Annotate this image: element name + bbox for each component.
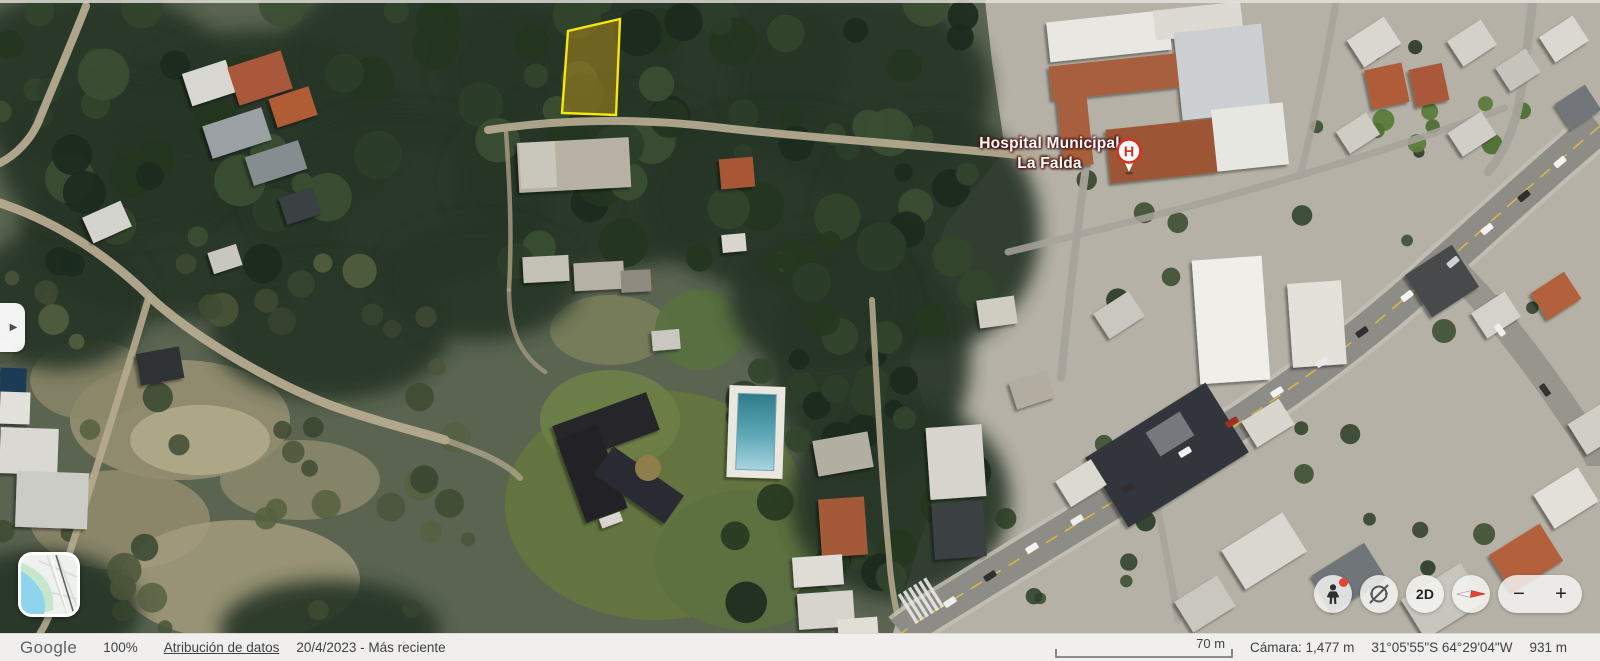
tree: [854, 366, 888, 400]
zoom-in-button[interactable]: +: [1540, 575, 1582, 613]
tree: [1432, 319, 1456, 343]
map-viewport[interactable]: Hospital Municipal La Falda H ▶: [0, 0, 1600, 633]
building: [792, 554, 844, 587]
tree: [1526, 301, 1539, 314]
tree: [402, 600, 420, 618]
tree: [254, 289, 278, 313]
tree: [1294, 421, 1308, 435]
tree: [176, 254, 196, 274]
tree: [420, 520, 442, 542]
orbit-button[interactable]: [1360, 575, 1398, 613]
tree: [415, 306, 436, 327]
tree: [915, 304, 947, 336]
tree: [814, 194, 860, 240]
tree: [725, 582, 767, 624]
ground-elevation: 931 m: [1529, 640, 1567, 655]
minimap-preview: [21, 555, 77, 614]
tree: [1420, 560, 1435, 575]
tree: [664, 3, 703, 42]
tree: [383, 320, 401, 338]
tree: [947, 24, 974, 51]
tree: [1120, 553, 1137, 570]
tree: [312, 490, 341, 519]
tree: [515, 24, 550, 59]
tree: [821, 375, 850, 404]
tree: [354, 131, 402, 179]
tree: [721, 521, 750, 550]
tree: [1162, 268, 1181, 287]
field-patch: [130, 405, 270, 475]
tree: [308, 600, 329, 621]
tree: [266, 499, 287, 520]
building: [519, 141, 557, 189]
status-right-group: 70 m Cámara: 1,477 m 31°05'55"S 64°29'04…: [1055, 637, 1600, 659]
orbit-icon: [1367, 582, 1391, 606]
tree: [412, 23, 458, 69]
hospital-pin-icon: H: [1113, 137, 1145, 177]
tree: [956, 163, 979, 186]
imagery-edge-strip: [0, 0, 1600, 3]
tree: [1473, 523, 1495, 545]
tree: [1340, 424, 1360, 444]
map-controls: 2D − +: [1314, 575, 1582, 613]
tree: [615, 9, 662, 56]
svg-text:H: H: [1124, 145, 1134, 161]
satellite-imagery: [0, 0, 1600, 633]
camera-altitude: Cámara: 1,477 m: [1250, 640, 1354, 655]
compass-needle-icon: [1455, 578, 1487, 610]
tree: [1408, 40, 1422, 54]
tree: [38, 304, 69, 335]
building: [926, 424, 987, 500]
tree: [405, 383, 434, 412]
tree: [282, 441, 305, 464]
tree: [789, 349, 809, 369]
2d-button[interactable]: 2D: [1406, 575, 1444, 613]
tree: [361, 304, 383, 326]
building: [620, 269, 651, 293]
building: [573, 261, 624, 292]
tree: [131, 534, 158, 561]
building: [1211, 102, 1289, 171]
tree: [757, 484, 794, 521]
data-attribution-link[interactable]: Atribución de datos: [164, 640, 280, 655]
tree: [429, 358, 447, 376]
tree: [325, 54, 364, 93]
tree: [887, 49, 921, 83]
building: [1192, 256, 1270, 385]
compass-button[interactable]: [1452, 575, 1490, 613]
building: [1364, 62, 1409, 109]
tree: [866, 108, 914, 156]
building: [15, 471, 89, 529]
pegman-button[interactable]: [1314, 575, 1352, 613]
tree: [5, 271, 20, 286]
tree: [461, 532, 475, 546]
tree: [639, 66, 674, 101]
hospital-poi-pin[interactable]: H: [1113, 137, 1145, 177]
tree: [890, 366, 919, 395]
imagery-zoom-percent: 100%: [103, 640, 138, 655]
tree: [313, 254, 332, 273]
building: [719, 157, 755, 190]
tree: [112, 601, 132, 621]
tree: [342, 254, 376, 288]
tree: [1421, 103, 1438, 120]
tree: [63, 171, 106, 214]
tree: [69, 334, 85, 350]
map-style-toggle[interactable]: [18, 552, 80, 617]
tree: [707, 187, 750, 230]
tree: [1026, 588, 1042, 604]
tree: [52, 135, 92, 175]
chevron-right-icon: ▶: [10, 322, 18, 333]
swimming-pool: [726, 385, 785, 479]
tree: [1292, 205, 1313, 226]
street-view-available-dot: [1339, 578, 1348, 587]
imagery-date: 20/4/2023 - Más reciente: [296, 640, 445, 655]
tree: [820, 231, 840, 251]
tree: [995, 508, 1016, 529]
tree: [1363, 513, 1376, 526]
tree: [932, 236, 973, 277]
tree: [377, 493, 406, 522]
tree: [1401, 235, 1413, 247]
zoom-control: − +: [1498, 575, 1582, 613]
tree: [792, 263, 831, 302]
building: [976, 295, 1018, 328]
tree: [524, 63, 548, 87]
building: [522, 255, 569, 283]
highlighted-parcel[interactable]: [562, 19, 620, 115]
building: [0, 391, 31, 424]
tree: [137, 583, 167, 613]
tree: [268, 307, 296, 335]
panel-expand-tab[interactable]: ▶: [0, 303, 25, 352]
tree: [1294, 464, 1314, 484]
building: [818, 496, 868, 557]
2d-label: 2D: [1416, 586, 1434, 602]
tree: [78, 49, 130, 101]
tree: [301, 460, 318, 477]
tree: [435, 489, 464, 518]
status-bar: Google 100% Atribución de datos 20/4/202…: [0, 633, 1600, 661]
tree: [708, 12, 731, 35]
tree: [785, 426, 812, 453]
scale-bar: 70 m: [1055, 637, 1233, 659]
tree: [168, 434, 189, 455]
building: [1287, 280, 1347, 368]
tree: [763, 252, 783, 272]
tree: [599, 219, 648, 268]
tree: [1120, 575, 1132, 587]
tree: [80, 419, 101, 440]
tree: [843, 18, 868, 43]
tree: [136, 162, 164, 190]
tree: [199, 294, 224, 319]
tree: [1167, 212, 1188, 233]
zoom-out-button[interactable]: −: [1498, 575, 1540, 613]
tree: [809, 305, 839, 335]
building: [651, 329, 681, 351]
building: [721, 233, 746, 253]
tree: [45, 247, 74, 276]
tree: [143, 382, 173, 412]
tree: [894, 163, 913, 182]
tree: [273, 421, 291, 439]
tree: [303, 417, 324, 438]
tree: [1412, 522, 1428, 538]
tree: [188, 226, 208, 246]
tree: [686, 245, 713, 272]
tree: [856, 222, 906, 272]
building: [837, 617, 878, 633]
google-earth-window: Hospital Municipal La Falda H ▶: [0, 0, 1600, 661]
tree: [893, 407, 916, 430]
tree: [748, 358, 774, 384]
tree: [410, 465, 438, 493]
tree: [767, 15, 805, 53]
cursor-coordinates: 31°05'55"S 64°29'04"W: [1371, 640, 1512, 655]
tree: [779, 106, 803, 130]
google-logo: Google: [20, 638, 77, 658]
tree: [243, 244, 283, 284]
building: [931, 500, 987, 559]
tree: [1478, 96, 1493, 111]
tree: [287, 270, 314, 297]
scale-label: 70 m: [1196, 636, 1225, 651]
building: [0, 427, 59, 475]
